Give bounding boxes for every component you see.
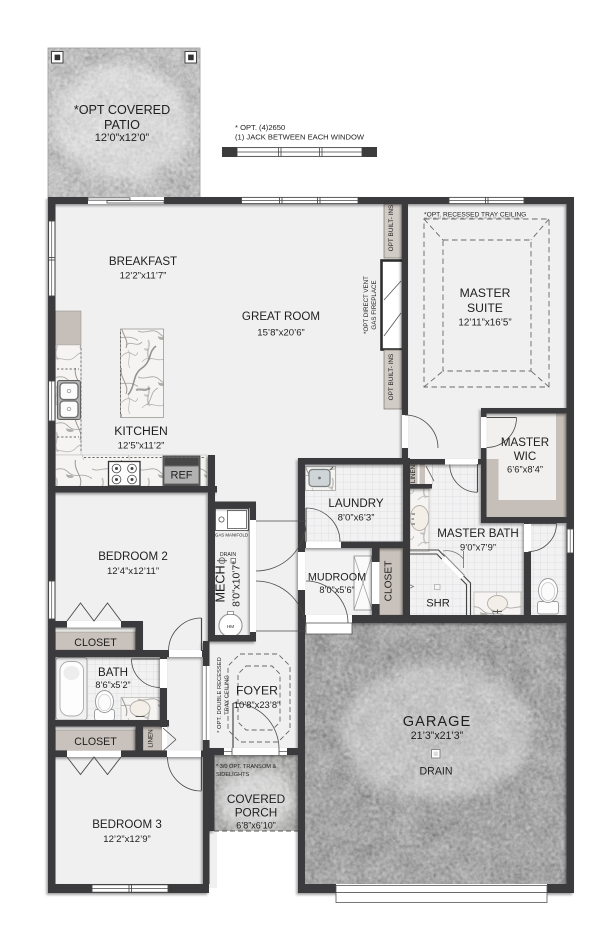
svg-text:15’8”x20’6”: 15’8”x20’6”	[257, 328, 304, 339]
svg-text:*OPT. RECESSED TRAY CEILING: *OPT. RECESSED TRAY CEILING	[424, 212, 526, 219]
svg-text:DRAIN: DRAIN	[420, 766, 453, 778]
svg-text:COVERED: COVERED	[227, 792, 285, 806]
svg-text:BEDROOM 2: BEDROOM 2	[98, 550, 168, 563]
svg-text:12’5”x11’2”: 12’5”x11’2”	[118, 441, 165, 452]
svg-text:9’0”x7’9”: 9’0”x7’9”	[460, 542, 496, 553]
svg-text:KITCHEN: KITCHEN	[114, 424, 168, 438]
svg-text:SIDELIGHTS: SIDELIGHTS	[216, 772, 250, 778]
svg-text:OPT BUILT- INS: OPT BUILT- INS	[388, 205, 395, 252]
svg-text:8’6”x5’2”: 8’6”x5’2”	[95, 680, 130, 690]
svg-text:CLOSET: CLOSET	[74, 736, 117, 748]
svg-text:GAS MANIFOLD: GAS MANIFOLD	[215, 533, 248, 538]
svg-text:* 3/0 OPT. TRANSOM &: * 3/0 OPT. TRANSOM &	[216, 764, 276, 770]
svg-text:8’0”x5’6”: 8’0”x5’6”	[319, 585, 354, 595]
svg-text:PORCH: PORCH	[235, 806, 278, 820]
svg-text:LAUNDRY: LAUNDRY	[328, 497, 383, 510]
svg-text:8’0”x6’3”: 8’0”x6’3”	[338, 513, 375, 524]
svg-text:(1) JACK BETWEEN EACH WINDOW: (1) JACK BETWEEN EACH WINDOW	[235, 133, 365, 142]
svg-text:GREAT ROOM: GREAT ROOM	[242, 310, 320, 323]
svg-text:HM: HM	[227, 624, 234, 629]
svg-text:* OPT. (4)2650: * OPT. (4)2650	[235, 123, 285, 132]
svg-text:MASTER: MASTER	[501, 436, 549, 449]
svg-text:MUDROOM: MUDROOM	[308, 572, 366, 584]
svg-text:12’11”x16’5”: 12’11”x16’5”	[458, 318, 511, 329]
svg-text:BATH: BATH	[98, 666, 128, 679]
svg-text:WIC: WIC	[514, 450, 537, 463]
svg-text:12’4”x12’11”: 12’4”x12’11”	[107, 566, 159, 577]
svg-text:* OPT. DOUBLE RECESSED: * OPT. DOUBLE RECESSED	[217, 657, 223, 733]
svg-text:REF: REF	[171, 470, 193, 482]
svg-text:OPT BUILT- INS: OPT BUILT- INS	[388, 354, 395, 401]
svg-text:TRAY CEILING: TRAY CEILING	[225, 675, 231, 715]
svg-text:PATIO: PATIO	[104, 118, 140, 132]
svg-text:21’3”x21’3”: 21’3”x21’3”	[411, 730, 464, 742]
svg-text:SHR: SHR	[426, 598, 450, 610]
svg-text:6’6”x8’4”: 6’6”x8’4”	[507, 464, 543, 475]
svg-text:GARAGE: GARAGE	[403, 714, 471, 730]
svg-text:12’2”x11’7”: 12’2”x11’7”	[120, 271, 167, 282]
svg-text:MASTER BATH: MASTER BATH	[437, 527, 519, 540]
svg-text:CLOSET: CLOSET	[384, 561, 395, 602]
svg-text:BEDROOM 3: BEDROOM 3	[92, 818, 162, 831]
svg-text:LINEN: LINEN	[148, 729, 155, 747]
svg-text:MECH: MECH	[214, 565, 228, 602]
svg-text:LINEN: LINEN	[410, 465, 417, 483]
svg-text:DRAIN: DRAIN	[220, 552, 236, 558]
svg-text:FOYER: FOYER	[236, 684, 278, 698]
svg-text:GAS FIREPLACE: GAS FIREPLACE	[371, 280, 378, 329]
svg-text:10’8”x23’8”: 10’8”x23’8”	[234, 699, 280, 710]
svg-text:8’0”x10’7”: 8’0”x10’7”	[232, 561, 243, 607]
svg-text:*OPT DIRECT VENT: *OPT DIRECT VENT	[363, 276, 370, 334]
svg-text:*OPT COVERED: *OPT COVERED	[74, 103, 170, 117]
svg-text:12’0”x12’0”: 12’0”x12’0”	[95, 132, 150, 144]
svg-text:6’8”x6’10”: 6’8”x6’10”	[236, 821, 276, 831]
svg-text:SUITE: SUITE	[467, 301, 503, 315]
svg-text:BREAKFAST: BREAKFAST	[109, 255, 177, 268]
svg-text:MASTER: MASTER	[460, 286, 511, 300]
svg-text:12’2”x12’9”: 12’2”x12’9”	[103, 834, 150, 845]
svg-text:CLOSET: CLOSET	[74, 637, 117, 649]
